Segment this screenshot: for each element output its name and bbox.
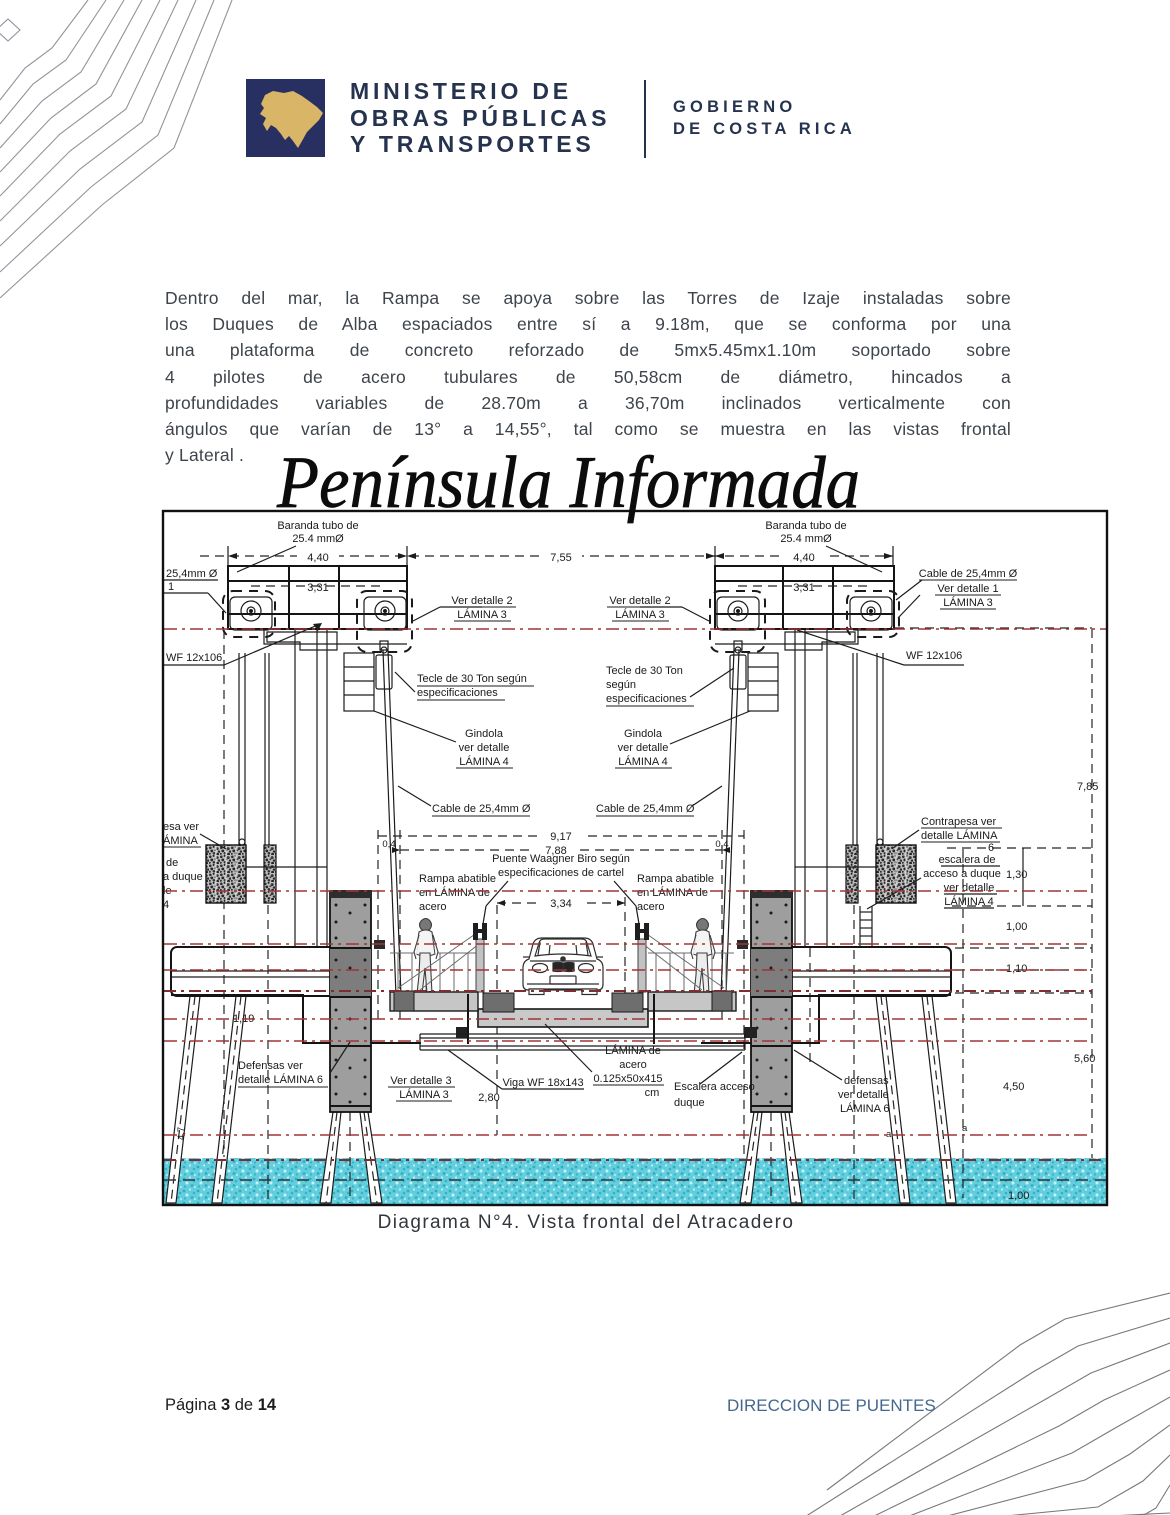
svg-text:5,60: 5,60 bbox=[1074, 1053, 1095, 1065]
svg-text:LÁMINA 3: LÁMINA 3 bbox=[399, 1088, 449, 1101]
svg-text:4,7: 4,7 bbox=[176, 1127, 187, 1140]
svg-text:acceso a duque: acceso a duque bbox=[923, 868, 1001, 880]
svg-text:ver detalle: ver detalle bbox=[459, 742, 510, 754]
svg-text:según: según bbox=[606, 679, 636, 691]
svg-text:acero: acero bbox=[419, 901, 447, 913]
svg-text:WF 12x106: WF 12x106 bbox=[166, 652, 222, 664]
svg-text:9,17: 9,17 bbox=[550, 831, 571, 843]
svg-text:Rampa abatible: Rampa abatible bbox=[637, 873, 714, 885]
svg-text:1,00: 1,00 bbox=[1006, 921, 1027, 933]
svg-text:Ver detalle 2: Ver detalle 2 bbox=[451, 595, 512, 607]
svg-text:3,34: 3,34 bbox=[550, 898, 571, 910]
svg-text:1,30: 1,30 bbox=[1006, 869, 1027, 881]
svg-text:0,4: 0,4 bbox=[715, 839, 728, 850]
svg-text:4,50: 4,50 bbox=[1003, 1081, 1024, 1093]
svg-text:25.4 mmØ: 25.4 mmØ bbox=[780, 533, 832, 545]
svg-text:cm: cm bbox=[645, 1087, 660, 1099]
svg-text:LÁMINA de: LÁMINA de bbox=[605, 1044, 661, 1057]
svg-text:Gindola: Gindola bbox=[624, 728, 663, 740]
svg-text:Ver detalle 3: Ver detalle 3 bbox=[390, 1075, 451, 1087]
svg-text:LÁMINA 4: LÁMINA 4 bbox=[459, 755, 509, 768]
svg-text:acero: acero bbox=[619, 1059, 647, 1071]
svg-text:ver detalle: ver detalle bbox=[944, 882, 995, 894]
svg-text:Viga WF 18x143: Viga WF 18x143 bbox=[502, 1077, 583, 1089]
svg-text:esa ver: esa ver bbox=[163, 821, 199, 833]
svg-text:3,31: 3,31 bbox=[307, 582, 328, 594]
svg-text:LÁMINA 3: LÁMINA 3 bbox=[457, 608, 507, 621]
svg-text:especificaciones: especificaciones bbox=[417, 687, 498, 699]
svg-text:1: 1 bbox=[168, 581, 174, 593]
svg-text:4,40: 4,40 bbox=[793, 552, 814, 564]
svg-text:duque: duque bbox=[674, 1097, 705, 1109]
svg-text:Ver detalle 2: Ver detalle 2 bbox=[609, 595, 670, 607]
svg-text:1,00: 1,00 bbox=[1008, 1190, 1029, 1202]
svg-text:4,40: 4,40 bbox=[307, 552, 328, 564]
svg-text:Contrapesa ver: Contrapesa ver bbox=[921, 816, 997, 828]
svg-text:Escalera acceso: Escalera acceso bbox=[674, 1081, 755, 1093]
svg-text:ÁMINA: ÁMINA bbox=[163, 834, 199, 847]
svg-text:Cable de 25,4mm Ø: Cable de 25,4mm Ø bbox=[432, 803, 531, 815]
svg-text:0.125x50x415: 0.125x50x415 bbox=[593, 1073, 662, 1085]
svg-text:WF 12x106: WF 12x106 bbox=[906, 650, 962, 662]
svg-text:LÁMINA 3: LÁMINA 3 bbox=[615, 608, 665, 621]
svg-text:Puente Waagner Biro según: Puente Waagner Biro según bbox=[492, 853, 630, 865]
svg-text:especificaciones de cartel: especificaciones de cartel bbox=[498, 867, 624, 879]
svg-text:Rampa abatible: Rampa abatible bbox=[419, 873, 496, 885]
svg-text:7,55: 7,55 bbox=[550, 552, 571, 564]
svg-text:2,80: 2,80 bbox=[478, 1092, 499, 1104]
svg-text:ver detalle: ver detalle bbox=[838, 1089, 889, 1101]
svg-text:LÁMINA 4: LÁMINA 4 bbox=[618, 755, 668, 768]
svg-text:1,10: 1,10 bbox=[1006, 963, 1027, 975]
svg-text:LÁMINA 3: LÁMINA 3 bbox=[943, 596, 993, 609]
svg-text:Gindola: Gindola bbox=[465, 728, 504, 740]
svg-text:en LÁMINA de: en LÁMINA de bbox=[637, 886, 708, 899]
svg-text:escalera de: escalera de bbox=[939, 854, 996, 866]
svg-text:Cable de 25,4mm Ø: Cable de 25,4mm Ø bbox=[596, 803, 695, 815]
svg-text:Ver detalle 1: Ver detalle 1 bbox=[937, 583, 998, 595]
svg-text:Tecle de 30 Ton: Tecle de 30 Ton bbox=[606, 665, 683, 677]
svg-text:en LÁMINA de: en LÁMINA de bbox=[419, 886, 490, 899]
svg-text:Tecle de 30 Ton según: Tecle de 30 Ton según bbox=[417, 673, 527, 685]
svg-text:Cable de 25,4mm Ø: Cable de 25,4mm Ø bbox=[919, 568, 1018, 580]
svg-text:Defensas ver: Defensas ver bbox=[238, 1060, 303, 1072]
svg-text:7,85: 7,85 bbox=[1077, 781, 1098, 793]
svg-text:acero: acero bbox=[637, 901, 665, 913]
svg-text:ver detalle: ver detalle bbox=[618, 742, 669, 754]
svg-text:0,4: 0,4 bbox=[382, 839, 395, 850]
svg-text:3,31: 3,31 bbox=[793, 582, 814, 594]
svg-text:25.4 mmØ: 25.4 mmØ bbox=[292, 533, 344, 545]
svg-text:defensas: defensas bbox=[844, 1075, 889, 1087]
svg-text:a duque: a duque bbox=[163, 871, 203, 883]
svg-text:a: a bbox=[962, 1123, 968, 1134]
svg-text:25,4mm Ø: 25,4mm Ø bbox=[166, 568, 218, 580]
svg-text:detalle LÁMINA 6: detalle LÁMINA 6 bbox=[238, 1073, 323, 1086]
svg-text:de: de bbox=[166, 857, 178, 869]
svg-text:detalle LÁMINA: detalle LÁMINA bbox=[921, 829, 998, 842]
svg-text:LÁMINA 6: LÁMINA 6 bbox=[840, 1102, 890, 1115]
svg-text:especificaciones: especificaciones bbox=[606, 693, 687, 705]
